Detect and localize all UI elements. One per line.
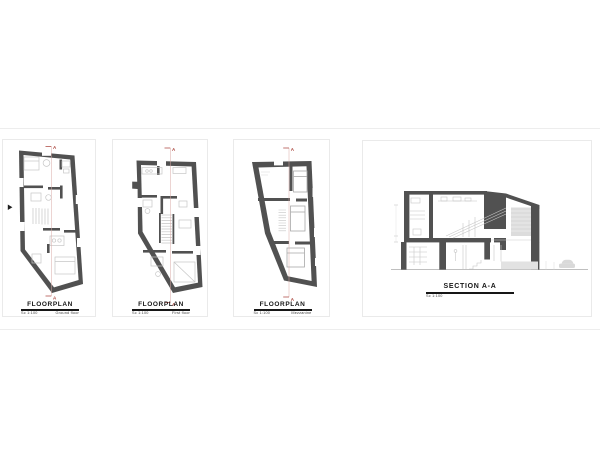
- panel-floorplan-ground: A A FLOORPLAN Sc 1:100 Ground floor: [2, 139, 96, 317]
- plan-scale: Sc 1:100: [132, 311, 149, 316]
- plan-floor-name: Mezzanine: [291, 311, 311, 316]
- entrance-arrow-icon: [8, 205, 13, 211]
- bed-platform: [501, 262, 538, 270]
- plan-floor-name: First floor: [172, 311, 190, 316]
- first-floor-plan-drawing: A A: [113, 140, 209, 318]
- panel-section-aa: SECTION A-A Sc 1:100: [362, 140, 592, 317]
- section-title: SECTION A-A: [426, 283, 514, 291]
- svg-text:A: A: [53, 145, 57, 150]
- sheet-bottom-edge: [0, 329, 600, 330]
- plan-label-ground: FLOORPLAN Sc 1:100 Ground floor: [21, 301, 79, 316]
- panel-floorplan-mezzanine: A A FLOORPLAN Sc 1:100 Mezzanine: [233, 139, 330, 317]
- svg-text:A: A: [53, 296, 57, 301]
- plan-title: FLOORPLAN: [21, 301, 79, 308]
- plan-title: FLOORPLAN: [132, 301, 190, 308]
- sheet-top-edge: [0, 128, 600, 129]
- svg-text:A: A: [172, 147, 176, 152]
- plan-scale: Sc 1:100: [254, 311, 271, 316]
- plan-title: FLOORPLAN: [254, 301, 312, 308]
- hatched-wall: [511, 208, 531, 237]
- ground-floor-plan-drawing: A A: [3, 140, 97, 318]
- mezzanine-plan-drawing: A A: [234, 140, 331, 318]
- dimension-marks: [394, 205, 398, 242]
- plan-label-mezzanine: FLOORPLAN Sc 1:100 Mezzanine: [254, 301, 312, 316]
- panel-floorplan-first: A A FLOORPLAN Sc 1:100 First floor: [112, 139, 208, 317]
- drawing-sheet: A A FLOORPLAN Sc 1:100 Ground floor: [0, 0, 600, 460]
- plan-scale: Sc 1:100: [21, 311, 38, 316]
- background-lines: [546, 261, 554, 270]
- car-icon: [559, 260, 575, 268]
- svg-text:A: A: [291, 147, 295, 152]
- section-label: SECTION A-A Sc 1:100: [426, 283, 514, 299]
- plan-floor-name: Ground floor: [55, 311, 79, 316]
- plan-label-first: FLOORPLAN Sc 1:100 First floor: [132, 301, 190, 316]
- section-scale: Sc 1:100: [426, 294, 443, 299]
